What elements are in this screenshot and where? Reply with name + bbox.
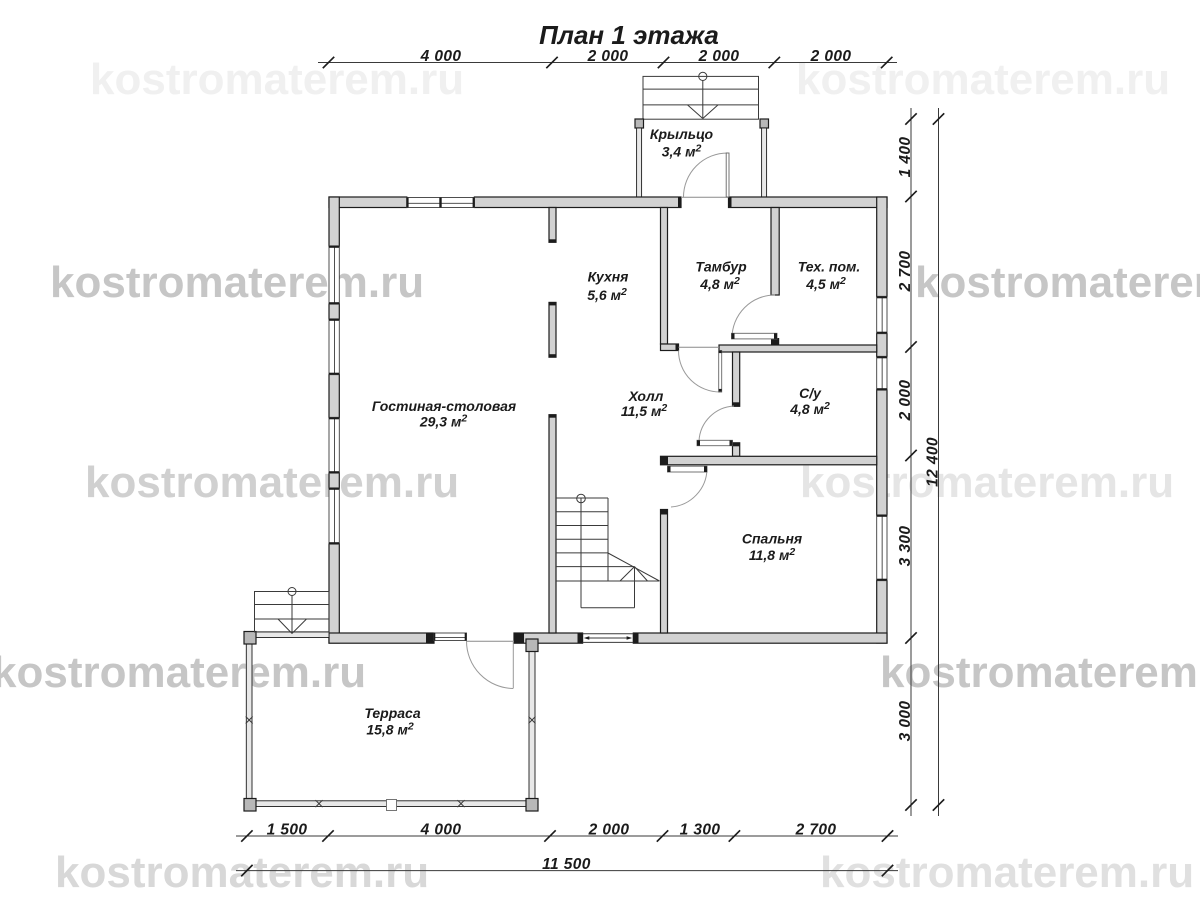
svg-text:Холл: Холл [628, 388, 664, 404]
svg-text:Терраса: Терраса [364, 705, 420, 721]
svg-text:3 000: 3 000 [897, 701, 914, 742]
svg-text:2 000: 2 000 [587, 48, 629, 65]
svg-text:kostromaterem.ru: kostromaterem.ru [0, 648, 366, 697]
svg-text:Кухня: Кухня [588, 269, 629, 285]
svg-text:15,8 м2: 15,8 м2 [366, 721, 414, 738]
svg-text:План 1 этажа: План 1 этажа [539, 20, 719, 50]
svg-text:4,5 м2: 4,5 м2 [805, 275, 846, 292]
svg-text:5,6 м2: 5,6 м2 [587, 286, 627, 303]
svg-text:Тамбур: Тамбур [695, 259, 747, 275]
svg-text:11,5 м2: 11,5 м2 [621, 402, 667, 419]
svg-text:3,4 м2: 3,4 м2 [662, 143, 702, 160]
svg-text:4 000: 4 000 [420, 48, 462, 65]
svg-text:2 000: 2 000 [810, 48, 852, 65]
svg-text:29,3 м2: 29,3 м2 [419, 413, 468, 430]
svg-text:4 000: 4 000 [420, 822, 462, 839]
svg-text:kostromaterem.ru: kostromaterem.ru [820, 848, 1194, 897]
svg-text:12 400: 12 400 [925, 437, 942, 487]
svg-text:2 000: 2 000 [698, 48, 740, 65]
svg-text:kostromaterem.ru: kostromaterem.ru [915, 258, 1200, 307]
svg-text:3 300: 3 300 [897, 526, 914, 567]
svg-text:1 400: 1 400 [897, 137, 914, 178]
svg-text:11,8 м2: 11,8 м2 [749, 546, 795, 563]
svg-text:С/у: С/у [799, 385, 822, 401]
svg-text:1 300: 1 300 [680, 822, 721, 839]
svg-text:kostromaterem.ru: kostromaterem.ru [55, 848, 429, 897]
svg-text:4,8 м2: 4,8 м2 [699, 275, 740, 292]
svg-text:11 500: 11 500 [542, 856, 591, 873]
svg-text:Крыльцо: Крыльцо [650, 126, 714, 142]
svg-text:2 700: 2 700 [897, 251, 914, 293]
svg-text:1 500: 1 500 [267, 822, 308, 839]
svg-text:Тех. пом.: Тех. пом. [798, 259, 861, 275]
svg-text:kostromaterem.ru: kostromaterem.ru [85, 458, 459, 507]
svg-text:2 700: 2 700 [795, 822, 837, 839]
svg-text:Спальня: Спальня [742, 531, 802, 547]
svg-text:2 000: 2 000 [897, 380, 914, 422]
svg-text:2 000: 2 000 [588, 822, 630, 839]
svg-text:4,8 м2: 4,8 м2 [789, 400, 830, 417]
svg-text:Гостиная-столовая: Гостиная-столовая [372, 398, 516, 414]
svg-text:kostromaterem.ru: kostromaterem.ru [50, 258, 424, 307]
svg-text:kostromaterem.ru: kostromaterem.ru [880, 648, 1200, 697]
